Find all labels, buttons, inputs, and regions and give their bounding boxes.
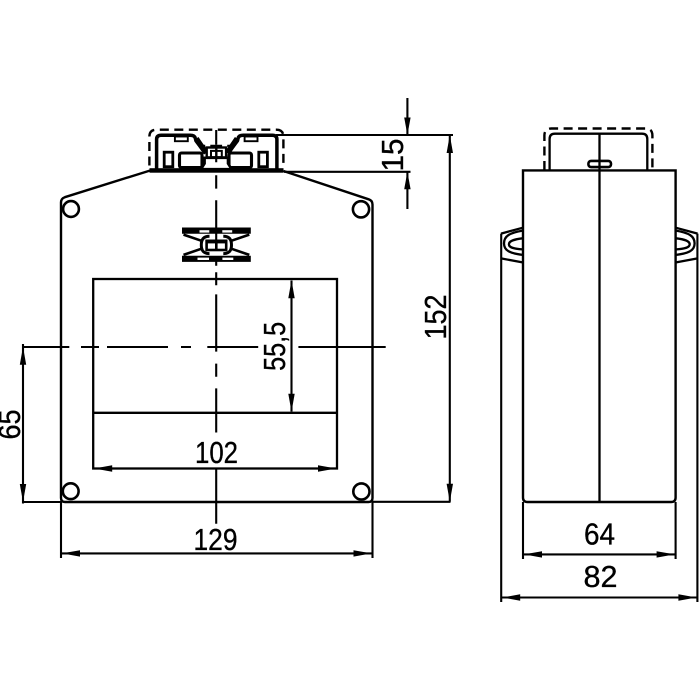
svg-text:65: 65 bbox=[0, 410, 27, 440]
svg-text:129: 129 bbox=[194, 522, 238, 557]
svg-text:102: 102 bbox=[195, 435, 238, 470]
svg-text:15: 15 bbox=[375, 139, 410, 172]
svg-text:82: 82 bbox=[584, 559, 618, 594]
svg-text:55,5: 55,5 bbox=[257, 322, 292, 371]
svg-text:152: 152 bbox=[418, 295, 453, 340]
svg-text:64: 64 bbox=[584, 517, 615, 552]
